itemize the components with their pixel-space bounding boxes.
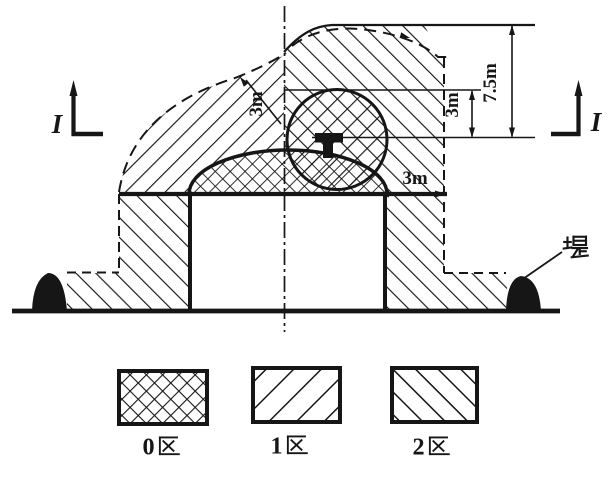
dike-label [564,237,588,258]
svg-text:1: 1 [270,432,282,459]
arrow-75m-down [509,128,515,138]
dike-leader-line [520,252,562,281]
arrow-75m-up [509,25,515,35]
section-label-left: I [51,109,64,139]
legend-swatch-zone2 [392,368,477,422]
dim-text-total-height: 7.5m [480,63,501,103]
arrow-3m-down [469,128,475,138]
legend-label-zone2: 2 [412,433,448,460]
dike-left [32,273,67,311]
arrow-3m-up [469,90,475,100]
legend-swatch-zone0 [119,371,207,424]
dim-text-vent-radius: 3m [442,92,463,118]
diagram-canvas: I I 3m 3m 7.5m 3m 0 1 2 [0,0,612,480]
dim-text-roof-clearance: 3m [246,91,267,117]
svg-text:2: 2 [412,433,424,460]
tank-zone-diagram: I I 3m 3m 7.5m 3m 0 1 2 [0,0,612,480]
dim-text-shell-clearance: 3m [402,168,428,189]
zone2-region-left-strip [67,194,190,311]
legend-swatch-zone1 [253,368,340,422]
section-marker-right [551,80,583,136]
tank-shell [190,194,385,311]
section-label-right: I [590,107,603,137]
svg-text:0: 0 [142,433,154,460]
section-marker-left [70,80,104,136]
legend-label-zone0: 0 [142,433,178,460]
dike-right [506,276,541,311]
legend-label-zone1: 1 [270,432,306,459]
